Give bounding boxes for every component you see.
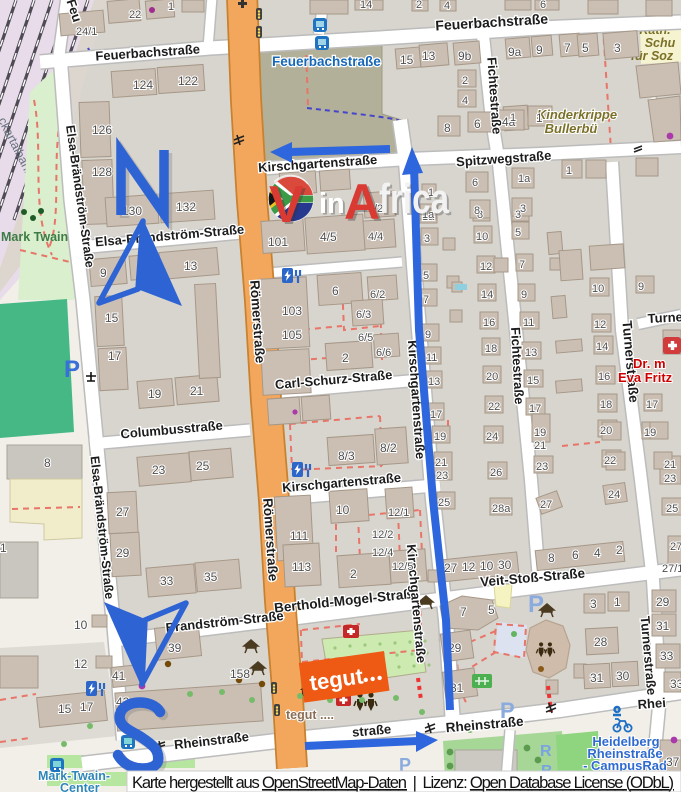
svg-text:21: 21: [435, 457, 447, 469]
svg-text:8: 8: [44, 456, 51, 470]
svg-text:35: 35: [204, 570, 218, 584]
svg-text:4/4: 4/4: [368, 231, 383, 243]
svg-text:37: 37: [666, 755, 680, 769]
svg-text:17: 17: [108, 349, 122, 363]
svg-text:22: 22: [604, 455, 616, 467]
svg-text:4: 4: [462, 95, 468, 107]
svg-text:1: 1: [0, 541, 7, 555]
svg-text:9b: 9b: [458, 49, 472, 63]
svg-text:16: 16: [598, 371, 610, 383]
svg-text:23: 23: [536, 461, 548, 473]
svg-text:1a: 1a: [518, 173, 531, 185]
svg-text:12/2: 12/2: [372, 529, 393, 541]
svg-text:126: 126: [92, 123, 112, 137]
svg-text:31: 31: [590, 671, 604, 685]
svg-text:15: 15: [400, 53, 414, 67]
svg-text:1: 1: [614, 595, 621, 609]
svg-text:19: 19: [148, 387, 162, 401]
svg-text:13: 13: [428, 376, 440, 388]
svg-text:25: 25: [666, 503, 678, 515]
svg-text:17: 17: [529, 403, 541, 415]
svg-text:28: 28: [594, 635, 608, 649]
svg-text:frica: frica: [379, 175, 450, 222]
svg-text:24: 24: [608, 489, 620, 501]
svg-text:29: 29: [116, 546, 130, 560]
svg-text:12: 12: [462, 560, 476, 574]
svg-text:105: 105: [282, 328, 302, 342]
svg-text:Kinderkrippe: Kinderkrippe: [537, 107, 617, 122]
svg-text:P: P: [64, 356, 80, 383]
svg-text:30: 30: [498, 558, 512, 572]
svg-text:8: 8: [474, 205, 480, 217]
svg-text:9: 9: [536, 43, 543, 57]
svg-text:23: 23: [152, 463, 166, 477]
svg-text:6/5: 6/5: [358, 332, 373, 344]
svg-text:17: 17: [646, 399, 658, 411]
svg-text:Mark Twain: Mark Twain: [1, 230, 68, 244]
svg-text:5: 5: [515, 227, 521, 239]
svg-text:R: R: [540, 743, 552, 760]
svg-text:8/2: 8/2: [380, 441, 397, 455]
svg-text:9: 9: [425, 329, 431, 341]
svg-text:7: 7: [519, 259, 525, 271]
svg-text:21: 21: [664, 459, 676, 471]
svg-text:20: 20: [600, 425, 612, 437]
svg-text:20: 20: [486, 371, 498, 383]
svg-text:13: 13: [184, 259, 198, 273]
svg-text:22: 22: [488, 401, 500, 413]
svg-text:9: 9: [100, 266, 107, 280]
svg-text:3: 3: [590, 597, 597, 611]
svg-text:13: 13: [525, 347, 537, 359]
svg-text:101: 101: [268, 235, 288, 249]
svg-text:1: 1: [536, 111, 543, 125]
svg-text:18: 18: [600, 399, 612, 411]
svg-text:3: 3: [614, 41, 621, 55]
svg-text:18: 18: [485, 343, 497, 355]
svg-text:22: 22: [129, 9, 141, 21]
svg-text:6/6: 6/6: [376, 347, 391, 359]
svg-text:in: in: [319, 188, 345, 220]
svg-text:11: 11: [426, 352, 437, 364]
svg-text:5: 5: [423, 270, 429, 282]
svg-text:124: 124: [133, 78, 153, 92]
svg-text:6: 6: [474, 117, 481, 131]
svg-text:9a: 9a: [508, 45, 522, 59]
svg-text:6/2: 6/2: [370, 289, 385, 301]
svg-text:7: 7: [460, 605, 467, 619]
svg-text:17: 17: [430, 409, 442, 421]
svg-text:Center: Center: [60, 781, 100, 792]
svg-text:8/3: 8/3: [338, 449, 355, 463]
svg-text:25: 25: [196, 459, 210, 473]
svg-text:2: 2: [416, 0, 422, 11]
svg-text:111: 111: [290, 529, 309, 543]
svg-text:13: 13: [422, 49, 436, 63]
svg-text:29: 29: [656, 595, 670, 609]
svg-text:9: 9: [638, 281, 644, 293]
svg-text:2: 2: [462, 75, 468, 87]
svg-text:33: 33: [160, 574, 174, 588]
svg-text:12: 12: [480, 261, 492, 273]
svg-text:8: 8: [444, 121, 451, 135]
svg-text:tegut ....: tegut ....: [286, 708, 334, 722]
svg-text:8: 8: [548, 551, 555, 565]
svg-text:41: 41: [112, 669, 126, 683]
svg-text:Turner: Turner: [647, 309, 681, 326]
svg-text:14: 14: [481, 289, 493, 301]
svg-text:7: 7: [564, 41, 571, 55]
svg-text:10: 10: [592, 283, 604, 295]
svg-text:2: 2: [616, 543, 623, 557]
svg-text:10: 10: [480, 559, 494, 573]
svg-text:103: 103: [282, 304, 302, 318]
svg-text:5: 5: [582, 41, 589, 55]
svg-text:Karte hergestellt aus OpenStre: Karte hergestellt aus OpenStreetMap-Date…: [132, 773, 674, 792]
svg-text:7: 7: [423, 294, 429, 306]
svg-text:23: 23: [436, 470, 448, 482]
svg-text:4/5: 4/5: [320, 230, 337, 244]
svg-text:6: 6: [332, 284, 339, 298]
svg-text:27/1: 27/1: [662, 563, 681, 575]
svg-text:Schu: Schu: [645, 36, 676, 50]
svg-text:24/1: 24/1: [76, 26, 97, 38]
svg-text:27: 27: [540, 499, 552, 511]
svg-text:10: 10: [74, 618, 88, 632]
svg-text:11: 11: [523, 317, 534, 329]
svg-text:6: 6: [540, 0, 546, 11]
svg-text:27: 27: [444, 561, 458, 575]
svg-text:33: 33: [660, 649, 674, 663]
svg-text:A: A: [344, 174, 380, 230]
svg-text:6: 6: [472, 177, 478, 189]
svg-text:132: 132: [176, 200, 196, 214]
svg-text:113: 113: [292, 560, 311, 574]
svg-text:14: 14: [360, 0, 372, 11]
svg-text:15: 15: [58, 702, 72, 716]
svg-text:3: 3: [520, 203, 526, 215]
svg-text:Eva Fritz: Eva Fritz: [618, 370, 673, 385]
svg-text:12/4: 12/4: [372, 547, 393, 559]
svg-text:28a: 28a: [492, 503, 511, 515]
svg-text:Feuerbachstraße: Feuerbachstraße: [272, 54, 381, 69]
svg-text:30: 30: [616, 669, 630, 683]
svg-text:3: 3: [424, 233, 430, 245]
svg-text:24: 24: [486, 431, 498, 443]
svg-text:2: 2: [350, 567, 357, 581]
svg-text:19: 19: [534, 427, 546, 439]
svg-text:Dr. m: Dr. m: [633, 356, 666, 371]
svg-text:39: 39: [168, 641, 182, 655]
svg-text:9: 9: [521, 289, 527, 301]
svg-text:21: 21: [534, 440, 546, 452]
svg-text:12: 12: [74, 657, 88, 671]
svg-text:27: 27: [670, 541, 681, 553]
svg-text:19: 19: [434, 431, 446, 443]
svg-text:128: 128: [92, 165, 112, 179]
svg-text:25: 25: [438, 497, 450, 509]
svg-text:10: 10: [336, 503, 350, 517]
svg-text:27: 27: [116, 505, 130, 519]
svg-text:16: 16: [483, 317, 495, 329]
svg-text:4: 4: [444, 0, 450, 12]
svg-text:Rhei: Rhei: [637, 695, 666, 712]
svg-text:12/1: 12/1: [388, 507, 409, 519]
svg-text:6/3: 6/3: [356, 309, 371, 321]
svg-text:1: 1: [566, 165, 572, 177]
svg-text:5: 5: [488, 603, 495, 617]
svg-text:158: 158: [230, 667, 250, 681]
svg-text:23: 23: [664, 473, 676, 485]
svg-text:26: 26: [490, 467, 502, 479]
svg-text:10: 10: [476, 231, 488, 243]
svg-text:12: 12: [594, 319, 606, 331]
svg-text:6: 6: [572, 548, 579, 562]
svg-text:21: 21: [190, 384, 204, 398]
svg-text:14: 14: [596, 341, 608, 353]
svg-text:15: 15: [527, 375, 539, 387]
svg-text:17: 17: [80, 700, 94, 714]
svg-text:1: 1: [510, 112, 516, 124]
svg-text:V: V: [269, 176, 304, 234]
svg-text:2: 2: [342, 351, 349, 365]
svg-text:19: 19: [644, 427, 656, 439]
svg-text:15: 15: [105, 311, 119, 325]
svg-text:Bullerbü: Bullerbü: [545, 121, 598, 136]
svg-text:1: 1: [168, 1, 174, 13]
svg-text:12/5: 12/5: [392, 561, 413, 573]
svg-text:4: 4: [594, 546, 601, 560]
svg-text:122: 122: [178, 74, 198, 88]
svg-text:31: 31: [656, 619, 670, 633]
svg-text:33: 33: [670, 677, 681, 691]
